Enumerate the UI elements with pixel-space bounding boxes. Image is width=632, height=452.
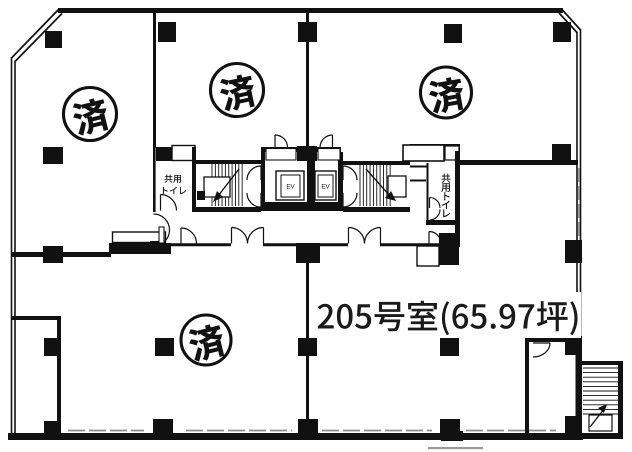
svg-text:EV: EV xyxy=(286,184,295,191)
svg-text:EV: EV xyxy=(321,184,330,191)
